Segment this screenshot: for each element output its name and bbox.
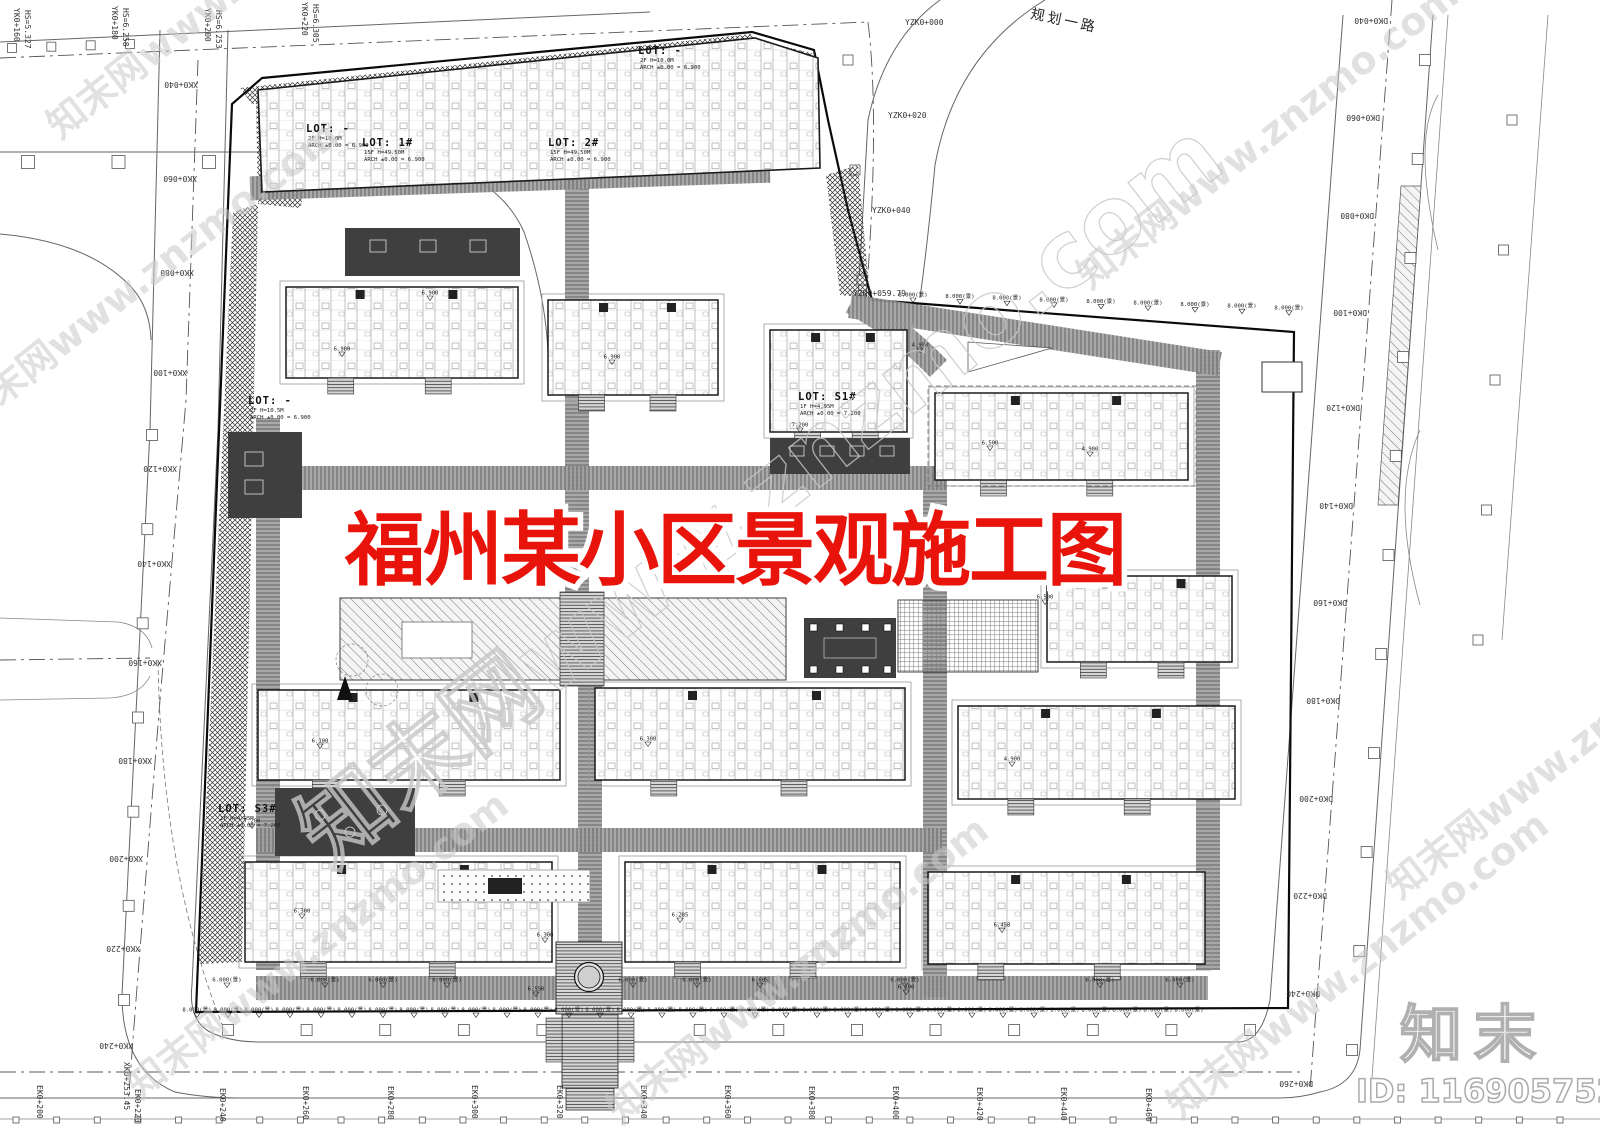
planting-along-planned-road [826,165,870,298]
chainage-label: HS=5.327 [23,10,32,49]
chainage-label: XK0+120 [143,464,177,473]
elevation-value: 8.000(景) [1143,1007,1172,1014]
elevation-value: 8.000(景) [1019,1007,1048,1014]
lot-sublabel: ARCH ±0.00 = 6.900 [640,65,701,71]
parking-bay-square [1110,1117,1116,1123]
elevation-value: 8.000(景) [554,1007,583,1014]
elevation-value: 6.000(景) [432,977,461,984]
elevation-value: 8.000(景) [1081,1007,1110,1014]
chainage-label: EK0+420 [975,1087,984,1121]
stair-core [448,290,457,299]
chainage-label: DK0+200 [1299,794,1333,803]
parking-bay-square [826,1117,832,1123]
parking-bay-square [86,41,95,50]
elevation-value: 6.000(景) [368,977,397,984]
elevation-value: 4.900 [1004,757,1021,763]
parking-bay-square [338,1117,344,1123]
elevation-marker-icon [1145,306,1151,311]
stair-core [1041,709,1050,718]
lot-sublabel: ARCH ±0.00 = 6.900 [550,157,611,163]
entrance-steps [1087,480,1113,496]
elevation-value: 8.000(景) [864,1007,893,1014]
chainage-label: YK0+160 [12,8,21,42]
parking-bay-square [1368,748,1379,759]
parking-bay-square [128,806,139,817]
chainage-label: XK0+040 [164,80,198,89]
entrance-steps [429,962,455,978]
elevation-marker-icon [845,1013,851,1018]
parking-bay-square [419,1117,425,1123]
chainage-label: XK0+180 [118,756,152,765]
elevation-marker-icon [783,1013,789,1018]
elevation-value: 8.000(景) [399,1007,428,1014]
stair-core [1011,875,1020,884]
entrance-steps [978,964,1004,980]
elevation-value: 8.000(景) [1174,1007,1203,1014]
lot-sublabel: 15F H=49.50M [364,150,405,156]
entrance-steps [1008,799,1034,815]
parking-bay-square [501,1117,507,1123]
elevation-value: 8.000(景) [1274,304,1303,311]
entrance-steps [651,780,677,796]
elevation-value: 8.000(景) [523,1007,552,1014]
parking-bay-square [541,1117,547,1123]
elevation-marker-icon [1286,311,1292,316]
lot-label: LOT: - [248,395,292,407]
elevation-marker-icon [910,298,916,303]
stair-core [599,303,608,312]
parking-bay-square [1490,375,1500,385]
chainage-label: XK0+220 [106,944,140,953]
elevation-value: 8.000(景) [957,1007,986,1014]
parking-bay-square [137,618,148,629]
chainage-label: XK0+200 [109,854,143,863]
chainage-label: YZK0+020 [888,111,927,120]
elevation-value: 8.000(景) [678,1007,707,1014]
chainage-label: EK0+320 [555,1085,564,1119]
chainage-label: DK0+060 [1346,113,1380,122]
chainage-label: DK0+080 [1340,211,1374,220]
elevation-marker-icon [1093,1013,1099,1018]
elevation-value: 8.000(景) [802,1007,831,1014]
planting-band-west [199,204,258,964]
parking-bay-square [704,1117,710,1123]
chainage-label: EK0+400 [891,1086,900,1120]
lot-label: LOT: 2# [548,137,599,149]
elevation-marker-icon [442,1013,448,1018]
elevation-value: 8.000(景) [1050,1007,1079,1014]
parking-bay-square [773,1025,784,1036]
stair-core [811,333,820,342]
elevation-marker-icon [969,1013,975,1018]
parking-bay-square [119,995,130,1006]
elevation-value: 8.000(景) [616,1007,645,1014]
chainage-label: EK0+440 [1059,1087,1068,1121]
parking-bay-square [1473,635,1483,645]
elevation-value: 4.900 [1082,447,1099,453]
stair-core [1122,875,1131,884]
elevation-value: 8.000(景) [1133,300,1162,307]
chainage-label: DK0+140 [1319,501,1353,510]
parking-bay-square [54,1117,60,1123]
lot-sublabel: ARCH ±0.00 = 6.900 [364,157,425,163]
lot-label: LOT: 1# [362,137,413,149]
elevation-marker-icon [1192,308,1198,313]
parking-bay-square [301,1025,312,1036]
branding: 知末 ID: 1169057525 [1356,998,1600,1110]
parking-bay-square [147,430,158,441]
elevation-value: 8.000(景) [895,1007,924,1014]
entrance-steps [781,780,807,796]
elevation-marker-icon [1098,304,1104,309]
parking-bay-square [1383,550,1394,561]
stair-core [1177,579,1186,588]
dot-plaza-feature [488,878,522,894]
parking-bay-square [1390,451,1401,462]
elevation-marker-icon [659,1013,665,1018]
lot-sublabel: 2F H=10.0M [640,58,674,64]
parking-bay-square [930,1025,941,1036]
elevation-marker-icon [318,1013,324,1018]
parking-bay-square [13,1117,19,1123]
elevation-value: 8.000(景) [492,1007,521,1014]
parking-bay-square [1347,1045,1358,1056]
parking-bay-square [1398,352,1409,363]
parking-bay-square [8,44,17,53]
chainage-label: EK0+260 [301,1086,310,1120]
chainage-label: DK0+160 [1313,598,1347,607]
elevation-marker-icon [473,1013,479,1018]
chainage-label: DK0+120 [1326,403,1360,412]
stair-core [667,303,676,312]
trellis-garden [898,600,1038,672]
entrance-steps [579,395,605,411]
page-title: 福州某小区景观施工图 [344,504,1125,597]
elevation-value: 8.000(景) [275,1007,304,1014]
guardhouse-ne [1262,362,1302,392]
pavilion-deck [804,618,896,678]
elevation-marker-icon [287,1013,293,1018]
parking-bay-square [1069,1117,1075,1123]
building-footprint [922,866,1211,980]
chainage-label: DK0+100 [1333,308,1367,317]
elevation-marker-icon [1186,1013,1192,1018]
chainage-label: YZK0+040 [872,206,911,215]
chainage-label: EK0+460 [1144,1088,1153,1122]
elevation-value: 6.000(景) [310,977,339,984]
elevation-marker-icon [1062,1013,1068,1018]
chainage-label: EK0+240 [218,1088,227,1122]
chainage-label: XK0+140 [137,559,171,568]
parking-bay-square [123,900,134,911]
elevation-value: 8.000(景) [1112,1007,1141,1014]
chainage-label: EK0+280 [386,1086,395,1120]
elevation-value: 6.100 [312,739,329,745]
stair-core [812,691,821,700]
parking-bay-square [1516,1117,1522,1123]
parking-bay-square [1087,1025,1098,1036]
parking-bay-square [1376,649,1387,660]
north-commercial-strip [258,38,820,192]
parking-bay-square [458,1025,469,1036]
parking-bay-square [1273,1117,1279,1123]
lot-sublabel: 2F H=10.5M [250,408,284,414]
parking-bay-square [133,712,144,723]
elevation-marker-icon [1155,1013,1161,1018]
elevation-marker-icon [814,1013,820,1018]
parking-bay-square [1482,505,1492,515]
entrance-steps [328,378,354,394]
building-footprint [952,700,1241,815]
parking-bay-square [380,1025,391,1036]
elevation-value: 8.000(景) [585,1007,614,1014]
chainage-label: DK0+260 [1279,1079,1313,1088]
chainage-label: DK0+180 [1306,696,1340,705]
parking-bay-square [1394,1117,1400,1123]
chainage-label: XK0+060 [163,174,197,183]
chainage-label: YZK0+000 [905,18,944,27]
entrance-steps [1080,662,1106,678]
elevation-value: 6.000(景) [1165,977,1194,984]
elevation-value: 6.000(景) [1085,977,1114,984]
elevation-value: 6.000(景) [890,977,919,984]
elevation-marker-icon [1124,1013,1130,1018]
entrance-steps-west [546,1018,562,1062]
parking-bay-square [582,1117,588,1123]
image-id-label: ID: 1169057525 [1356,1072,1600,1110]
elevation-value: 8.000(景) [988,1007,1017,1014]
stair-core [688,691,697,700]
building-outline [548,300,718,395]
parking-bay-square [1499,245,1509,255]
parking-bay-square [1354,1117,1360,1123]
chainage-label: XK0+240 [99,1041,133,1050]
left-branch-centerline [0,658,150,660]
parking-bay-square [1507,115,1517,125]
parking-bay-square [1405,253,1416,264]
left-branch-south [0,676,150,700]
elevation-marker-icon [628,1013,634,1018]
lot-label: LOT: - [638,45,682,57]
planned-road-name: 规划一路 [1029,6,1099,36]
parking-bay-square [1420,55,1431,66]
chainage-label: EK0+360 [723,1085,732,1119]
parking-bay-square [1009,1025,1020,1036]
parking-bay-square [460,1117,466,1123]
chainage-label: DK0+220 [1293,891,1327,900]
elevation-value: 6.900 [604,355,621,361]
elevation-value: 6.458 [994,923,1011,929]
elevation-value: 8.000(景) [647,1007,676,1014]
parking-bay-square [1435,1117,1441,1123]
parking-bay-square [1313,1117,1319,1123]
parking-bay-square [866,1117,872,1123]
lot-sublabel: ARCH ±0.00 = 7.200 [220,823,281,829]
parking-bay-square [379,1117,385,1123]
elevation-marker-icon [1031,1013,1037,1018]
elevation-value: 6.100 [898,985,915,991]
parking-bay-square [1557,1117,1563,1123]
parking-bay-square [112,156,125,169]
parking-bay-square [663,1117,669,1123]
top-road-curb [0,12,650,42]
chainage-label: YK0+180 [110,6,119,40]
water-axis-island [402,622,472,658]
parking-bay-square [785,1117,791,1123]
elevation-value: 6.300 [537,933,554,939]
parking-bay-square [142,524,153,535]
elevation-marker-icon [938,1013,944,1018]
chainage-label: EK0+300 [470,1085,479,1119]
lot-label: LOT: S3# [218,803,277,815]
elevation-value: 6.900 [422,291,439,297]
stair-core [708,865,717,874]
parking-bay-square [851,1025,862,1036]
clubhouse-garden [228,432,302,518]
elevation-marker-icon [1239,309,1245,314]
entrance-walkway [562,1014,618,1088]
landscape-construction-plan: XK0+040XK0+060XK0+080XK0+100XK0+120XK0+1… [0,0,1600,1131]
parking-bay-square [1166,1025,1177,1036]
elevation-marker-icon [411,1013,417,1018]
elevation-value: 8.000(景) [1180,301,1209,308]
elevation-value: 8.000(景) [368,1007,397,1014]
elevation-value: 8.000(景) [926,1007,955,1014]
elevation-value: 6.500 [982,441,999,447]
elevation-marker-icon [907,1013,913,1018]
entrance-steps [675,962,701,978]
chainage-label: EK0+200 [35,1085,44,1119]
parking-bay-square [1029,1117,1035,1123]
elevation-value: 8.000(景) [306,1007,335,1014]
elevation-marker-icon [876,1013,882,1018]
lot-sublabel: ARCH ±0.00 = 6.900 [250,415,311,421]
elevation-value: 8.000(景) [337,1007,366,1014]
chainage-label: HS=6.305 [311,4,320,43]
elevation-value: 6.300 [640,737,657,743]
building-footprint [542,294,724,411]
elevation-value: 8.000(景) [430,1007,459,1014]
elevation-marker-icon [690,1013,696,1018]
entrance-steps [650,395,676,411]
elevation-value: 6.550 [528,987,545,993]
stair-core [1112,396,1121,405]
elevation-marker-icon [349,1013,355,1018]
watermark-text: 知末网www.znzmo.com [0,112,347,437]
fountain-inner [578,966,600,988]
building-footprint [280,281,524,394]
elevation-marker-icon [1000,1013,1006,1018]
right-road-bay-2 [1405,430,1420,605]
elevation-value: 8.000(景) [833,1007,862,1014]
left-branch-north [0,618,152,648]
pavilion-plaza [804,618,896,678]
building-outline [286,287,518,378]
parking-bay-square [1232,1117,1238,1123]
lot-sublabel: 15F H=49.50M [550,150,591,156]
entrance-steps [981,480,1007,496]
entrance-steps [1124,799,1150,815]
znzmo-logo: 知末 [1400,998,1548,1071]
building-footprint [589,682,911,796]
elevation-value: 6.300 [294,909,311,915]
building-outline [595,688,905,780]
entrance-steps [425,378,451,394]
parking-bay-square [948,1117,954,1123]
parking-bay-square [1476,1117,1482,1123]
stair-core [356,290,365,299]
elevation-value: 6.000(景) [618,977,647,984]
parking-bay-square [203,156,216,169]
parking-bay-square [176,1117,182,1123]
building-outline [935,393,1188,480]
building-outline [928,872,1205,964]
elevation-value: 6.000(景) [682,977,711,984]
parking-bay-square [47,42,56,51]
parking-bay-square [257,1117,263,1123]
planned-road-centerline [866,22,874,300]
parking-bay-square [744,1117,750,1123]
entrance-steps-east [618,1018,634,1062]
chainage-label: XK0+160 [128,658,162,667]
parking-bay-square [94,1117,100,1123]
lot-sublabel: 1F H=4.95M [220,816,254,822]
right-outer-carriageway-east [1502,15,1548,640]
elevation-value: 6.285 [672,913,689,919]
chainage-label: EK0+380 [807,1086,816,1120]
building-footprint [929,387,1194,496]
parking-bay-square [1361,847,1372,858]
chainage-label: YK0+220 [300,2,309,36]
parking-bay-square [988,1117,994,1123]
stair-core [818,865,827,874]
right-road-bay-1 [1425,95,1438,250]
elevation-value: 8.000(景) [1227,303,1256,310]
elevation-marker-icon [504,1013,510,1018]
building-outline [958,706,1235,799]
parking-bay-square [1412,154,1423,165]
entrance-steps [1158,662,1184,678]
cad-site-plan-canvas: XK0+040XK0+060XK0+080XK0+100XK0+120XK0+1… [0,0,1600,1131]
elevation-value: 8.000(景) [461,1007,490,1014]
stair-core [1152,709,1161,718]
parking-bay-square [22,156,35,169]
parking-bay-square [843,55,853,65]
elevation-marker-icon [380,1013,386,1018]
elevation-value: 6.900 [334,347,351,353]
parking-bay-square [907,1117,913,1123]
chainage-label: XK0+100 [153,368,187,377]
stair-core [1011,396,1020,405]
elevation-marker-icon [535,1013,541,1018]
